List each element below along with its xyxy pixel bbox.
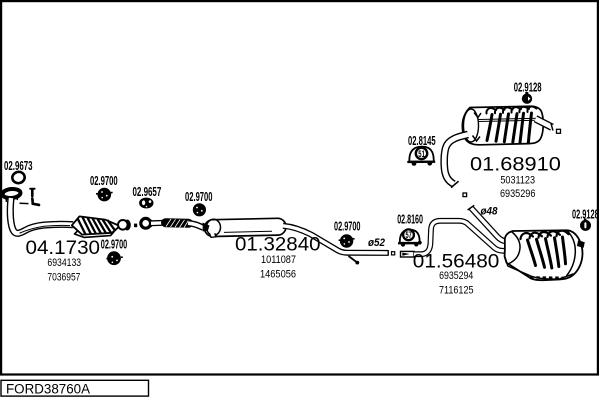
svg-text:1011087: 1011087 <box>261 254 296 266</box>
svg-text:01.68910: 01.68910 <box>470 154 561 175</box>
svg-text:7036957: 7036957 <box>47 271 80 283</box>
svg-text:ø48: ø48 <box>481 205 499 217</box>
svg-text:02.9700: 02.9700 <box>101 238 127 252</box>
svg-text:1465056: 1465056 <box>260 269 296 281</box>
svg-text:6935294: 6935294 <box>439 270 473 282</box>
svg-text:5031123: 5031123 <box>500 175 535 187</box>
svg-text:6934133: 6934133 <box>47 257 81 269</box>
svg-text:02.9700: 02.9700 <box>334 220 361 234</box>
svg-text:02.9700: 02.9700 <box>185 190 213 204</box>
svg-text:02.9700: 02.9700 <box>90 174 118 188</box>
svg-text:57: 57 <box>406 230 412 240</box>
svg-text:6935296: 6935296 <box>500 188 535 200</box>
svg-text:7116125: 7116125 <box>439 285 474 297</box>
svg-text:ø52: ø52 <box>368 237 385 249</box>
svg-text:FORD38760A: FORD38760A <box>6 382 91 398</box>
svg-text:04.1730: 04.1730 <box>26 238 101 259</box>
svg-text:02.8160: 02.8160 <box>397 213 423 227</box>
svg-text:02.9657: 02.9657 <box>133 185 162 199</box>
svg-text:51: 51 <box>418 149 425 159</box>
svg-text:01.32840: 01.32840 <box>235 235 321 256</box>
